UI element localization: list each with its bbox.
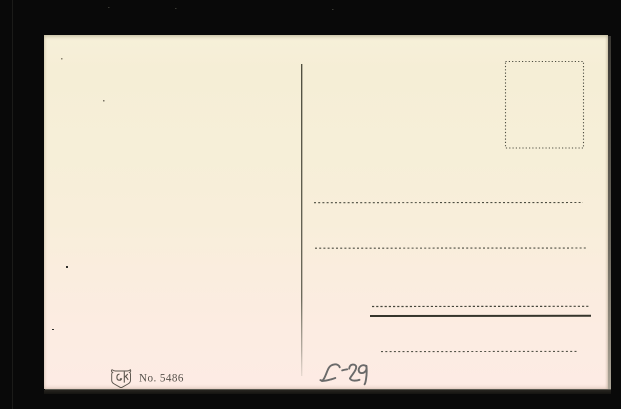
svg-text:No. 5486: No. 5486 (139, 373, 184, 385)
